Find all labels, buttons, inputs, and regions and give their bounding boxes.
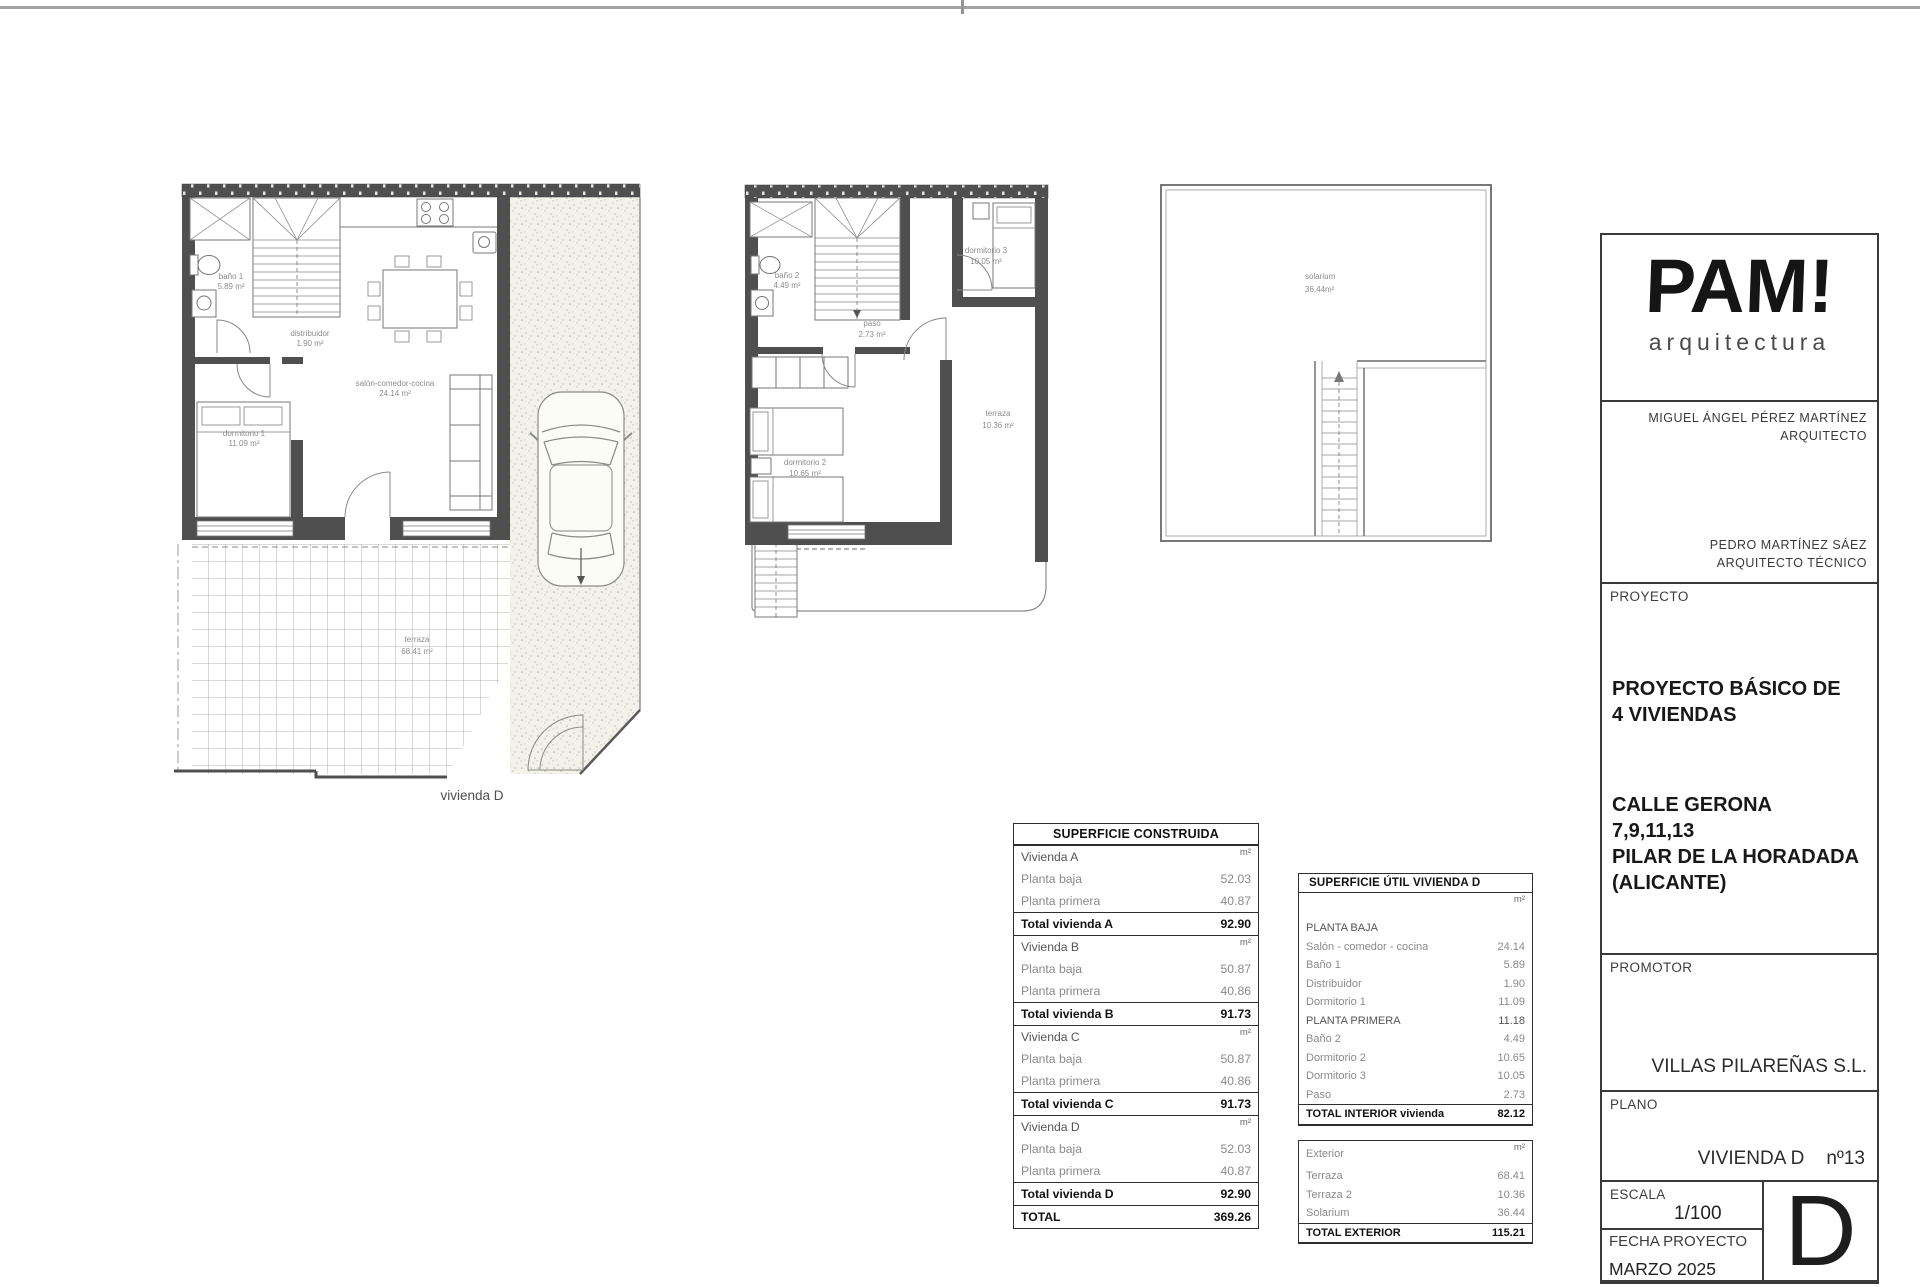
table-row: PLANTA BAJA bbox=[1299, 919, 1532, 938]
bed-dormitorio1 bbox=[197, 402, 290, 517]
address-line2: 7,9,11,13 bbox=[1612, 818, 1859, 844]
room-area: 5.89 m² bbox=[217, 282, 244, 291]
room-area: 68.41 m² bbox=[401, 647, 433, 656]
room-area: 1.90 m² bbox=[296, 339, 323, 348]
table-row: Planta baja50.87 bbox=[1014, 958, 1258, 980]
scale-date-section: ESCALA 1/100 FECHA PROYECTO MARZO 2025 D bbox=[1602, 1182, 1877, 1282]
superficie-construida-table: SUPERFICIE CONSTRUIDA Vivienda Am²Planta… bbox=[1013, 823, 1259, 1229]
table-row: Planta baja50.87 bbox=[1014, 1048, 1258, 1070]
sheet-top-edge bbox=[0, 6, 1920, 9]
promotor-label: PROMOTOR bbox=[1610, 960, 1692, 975]
room-label: baño 2 bbox=[775, 271, 800, 280]
address-line3: PILAR DE LA HORADADA bbox=[1612, 844, 1859, 870]
room-area: 10.05 m² bbox=[970, 257, 1002, 266]
pam-logo: PAM! bbox=[1601, 249, 1879, 325]
plano-section: PLANO VIVIENDA Dnº13 bbox=[1602, 1092, 1877, 1182]
first-floor-plan: baño 2 4.49 m² dormitorio 3 10.05 m² pas… bbox=[735, 170, 1075, 630]
architect-role: ARQUITECTO bbox=[1648, 428, 1867, 446]
staircase bbox=[253, 198, 340, 317]
plano-number: nº13 bbox=[1826, 1148, 1865, 1169]
sofa bbox=[450, 375, 492, 510]
table-row: Dormitorio 310.05 bbox=[1299, 1067, 1532, 1086]
kitchen-fixtures bbox=[340, 197, 497, 253]
table-title: SUPERFICIE ÚTIL VIVIENDA D bbox=[1299, 874, 1532, 893]
room-label: paso bbox=[863, 319, 881, 328]
wardrobe bbox=[752, 357, 848, 388]
room-label: terraza bbox=[405, 635, 430, 644]
room-label: dormitorio 1 bbox=[223, 429, 266, 438]
architect-name: MIGUEL ÁNGEL PÉREZ MARTÍNEZ bbox=[1648, 410, 1867, 428]
promotor-section: PROMOTOR VILLAS PILAREÑAS S.L. bbox=[1602, 955, 1877, 1092]
superficie-util-table: SUPERFICIE ÚTIL VIVIENDA D m²PLANTA BAJA… bbox=[1298, 873, 1533, 1126]
sheet-letter: D bbox=[1764, 1182, 1877, 1282]
architects-section: MIGUEL ÁNGEL PÉREZ MARTÍNEZ ARQUITECTO P… bbox=[1602, 402, 1877, 584]
table-row: Planta primera40.86 bbox=[1014, 980, 1258, 1003]
escala-label: ESCALA bbox=[1610, 1187, 1666, 1202]
staircase-first bbox=[815, 198, 900, 320]
table-row: Salón - comedor - cocina24.14 bbox=[1299, 938, 1532, 957]
table-row: TOTAL369.26 bbox=[1014, 1206, 1258, 1229]
table-row: TOTAL EXTERIOR115.21 bbox=[1299, 1223, 1532, 1243]
table-row: Baño 24.49 bbox=[1299, 1030, 1532, 1049]
table-row: Exteriorm² bbox=[1299, 1141, 1532, 1167]
solarium-stairs bbox=[1322, 371, 1357, 536]
room-area: 36,44m² bbox=[1305, 285, 1335, 294]
room-label: terraza bbox=[986, 409, 1011, 418]
ground-floor-plan: baño 1 5.89 m² distribuidor 1.90 m² saló… bbox=[140, 170, 660, 830]
fecha-value: MARZO 2025 bbox=[1609, 1259, 1716, 1280]
logo-section: PAM! arquitectura bbox=[1602, 235, 1877, 402]
table-row: m² bbox=[1299, 893, 1532, 919]
room-label: distribuidor bbox=[290, 329, 329, 338]
room-label: baño 1 bbox=[219, 272, 244, 281]
address-line1: CALLE GERONA bbox=[1612, 792, 1859, 818]
table-row: Solarium36.44 bbox=[1299, 1204, 1532, 1223]
address-line4: (ALICANTE) bbox=[1612, 870, 1859, 896]
technical-architect-name: PEDRO MARTÍNEZ SÁEZ bbox=[1710, 537, 1867, 555]
table-row: Planta primera40.87 bbox=[1014, 890, 1258, 913]
table-row: Vivienda Cm² bbox=[1014, 1026, 1258, 1049]
table-row: Total vivienda A92.90 bbox=[1014, 913, 1258, 936]
room-area: 24.14 m² bbox=[379, 389, 411, 398]
room-area: 11.09 m² bbox=[229, 439, 260, 448]
bathroom2-fixtures bbox=[750, 202, 812, 316]
table-row: Planta baja52.03 bbox=[1014, 1138, 1258, 1160]
table-row: Total vivienda D92.90 bbox=[1014, 1183, 1258, 1206]
exterior-stair bbox=[755, 543, 797, 617]
proyecto-label: PROYECTO bbox=[1610, 589, 1689, 604]
table-row: PLANTA PRIMERA11.18 bbox=[1299, 1012, 1532, 1031]
escala-value: 1/100 bbox=[1674, 1203, 1722, 1225]
plano-name: VIVIENDA D bbox=[1698, 1148, 1805, 1169]
proyecto-name-line2: 4 VIVIENDAS bbox=[1612, 702, 1841, 728]
plano-label: PLANO bbox=[1610, 1097, 1658, 1112]
room-area: 10.65 m² bbox=[789, 469, 821, 478]
table-row: Vivienda Bm² bbox=[1014, 936, 1258, 959]
logo-subtitle: arquitectura bbox=[1602, 329, 1877, 356]
table-row: Total vivienda B91.73 bbox=[1014, 1003, 1258, 1026]
table-row: Terraza 210.36 bbox=[1299, 1186, 1532, 1205]
table-row: Terraza68.41 bbox=[1299, 1167, 1532, 1186]
table-row: Vivienda Dm² bbox=[1014, 1116, 1258, 1139]
table-row: Planta primera40.86 bbox=[1014, 1070, 1258, 1093]
title-block: PAM! arquitectura MIGUEL ÁNGEL PÉREZ MAR… bbox=[1600, 233, 1879, 1284]
room-label: dormitorio 2 bbox=[784, 458, 827, 467]
room-area: 10.36 m² bbox=[982, 421, 1014, 430]
solarium-plan: solarium 36,44m² bbox=[1157, 175, 1497, 555]
room-label: dormitorio 3 bbox=[965, 246, 1008, 255]
car bbox=[530, 392, 632, 586]
table-row: Dormitorio 111.09 bbox=[1299, 993, 1532, 1012]
room-label: salón-comedor-cocina bbox=[356, 379, 435, 388]
table-row: Distribuidor1.90 bbox=[1299, 975, 1532, 994]
table-row: Planta primera40.87 bbox=[1014, 1160, 1258, 1183]
sheet-top-tick bbox=[961, 0, 964, 14]
table-row: Planta baja52.03 bbox=[1014, 868, 1258, 890]
dining-table bbox=[368, 256, 472, 342]
table-row: Dormitorio 210.65 bbox=[1299, 1049, 1532, 1068]
proyecto-section: PROYECTO PROYECTO BÁSICO DE 4 VIVIENDAS … bbox=[1602, 584, 1877, 955]
technical-architect-role: ARQUITECTO TÉCNICO bbox=[1710, 555, 1867, 573]
superficie-exterior-table: Exteriorm²Terraza68.41Terraza 210.36Sola… bbox=[1298, 1140, 1533, 1244]
room-label: solarium bbox=[1305, 272, 1336, 281]
promotor-name: VILLAS PILAREÑAS S.L. bbox=[1652, 1056, 1867, 1078]
table-row: Vivienda Am² bbox=[1014, 846, 1258, 869]
table-row: TOTAL INTERIOR vivienda82.12 bbox=[1299, 1105, 1532, 1125]
bathroom1-fixtures bbox=[190, 198, 250, 317]
proyecto-name-line1: PROYECTO BÁSICO DE bbox=[1612, 676, 1841, 702]
table-row: Baño 15.89 bbox=[1299, 956, 1532, 975]
plan-title: vivienda D bbox=[440, 788, 503, 803]
table-row: Total vivienda C91.73 bbox=[1014, 1093, 1258, 1116]
room-area: 2.73 m² bbox=[858, 330, 885, 339]
table-row: Paso2.73 bbox=[1299, 1086, 1532, 1105]
room-area: 4.49 m² bbox=[773, 281, 800, 290]
fecha-label: FECHA PROYECTO bbox=[1609, 1233, 1747, 1250]
table-title: SUPERFICIE CONSTRUIDA bbox=[1014, 824, 1258, 845]
